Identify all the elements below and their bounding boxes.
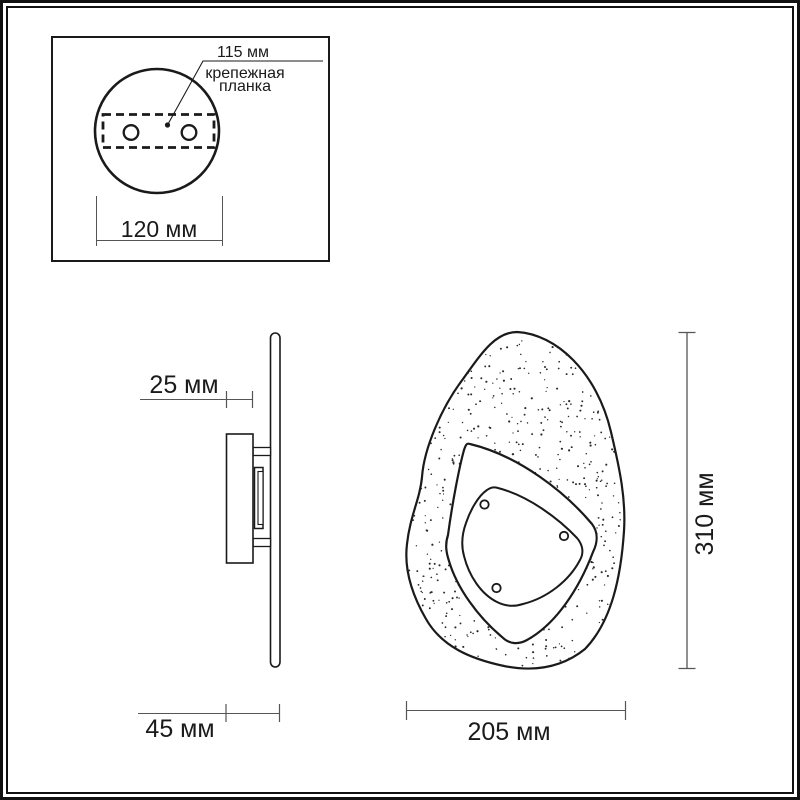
front-screw-hole-bottom	[492, 584, 500, 592]
panel-profile	[271, 333, 281, 667]
mounting-inset: 115 мм крепежная планка 120 мм	[52, 37, 329, 261]
mounting-plate-label-line2: планка	[219, 78, 271, 95]
technical-drawing-sheet: 115 мм крепежная планка 120 мм 25 мм 45 …	[0, 0, 800, 800]
front-view: 310 мм 205 мм	[402, 331, 719, 746]
front-screw-hole-top	[480, 500, 488, 508]
mounting-base-circle	[95, 69, 219, 193]
screw-hole-left	[124, 125, 139, 140]
total-depth-dimension-label: 45 мм	[145, 715, 214, 743]
driver-box-profile	[227, 434, 254, 563]
mount-tab-bottom	[253, 539, 271, 547]
front-screw-hole-right	[560, 532, 568, 540]
base-width-dimension-label: 120 мм	[121, 216, 197, 242]
hole-spacing-dimension-label: 115 мм	[217, 44, 269, 61]
body-depth-dimension-label: 25 мм	[149, 371, 218, 399]
width-dimension-label: 205 мм	[467, 718, 550, 746]
screw-hole-right	[182, 125, 197, 140]
mount-tab-top	[253, 448, 271, 456]
height-dimension-label: 310 мм	[691, 472, 719, 555]
side-view: 25 мм 45 мм	[138, 333, 280, 743]
bracket-inner-profile	[258, 472, 263, 525]
